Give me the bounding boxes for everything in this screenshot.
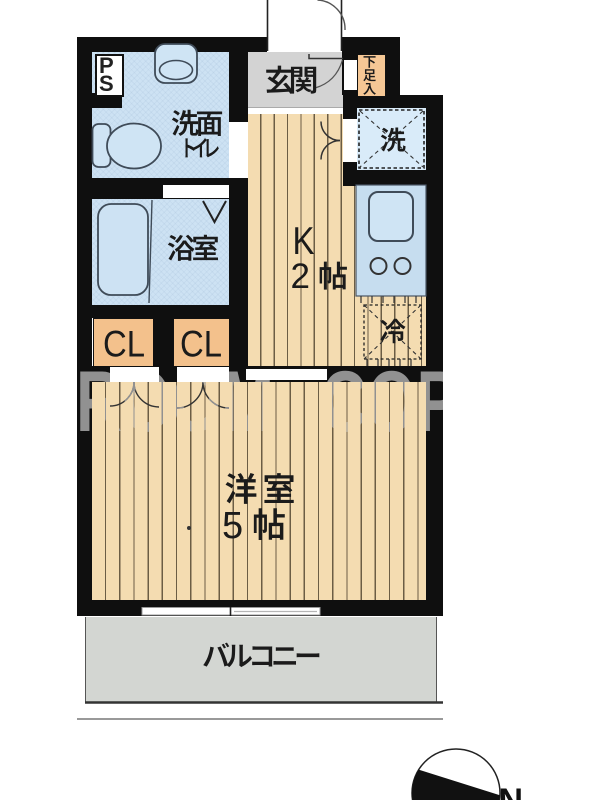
svg-text:2: 2	[291, 257, 310, 296]
svg-text:ROOM: ROOM	[76, 354, 274, 450]
svg-text:CL: CL	[180, 324, 222, 365]
svg-text:COP: COP	[321, 354, 459, 450]
svg-text:CL: CL	[103, 324, 145, 365]
svg-text:5: 5	[222, 505, 243, 547]
svg-text:N: N	[499, 782, 524, 800]
svg-text:S: S	[99, 71, 114, 96]
